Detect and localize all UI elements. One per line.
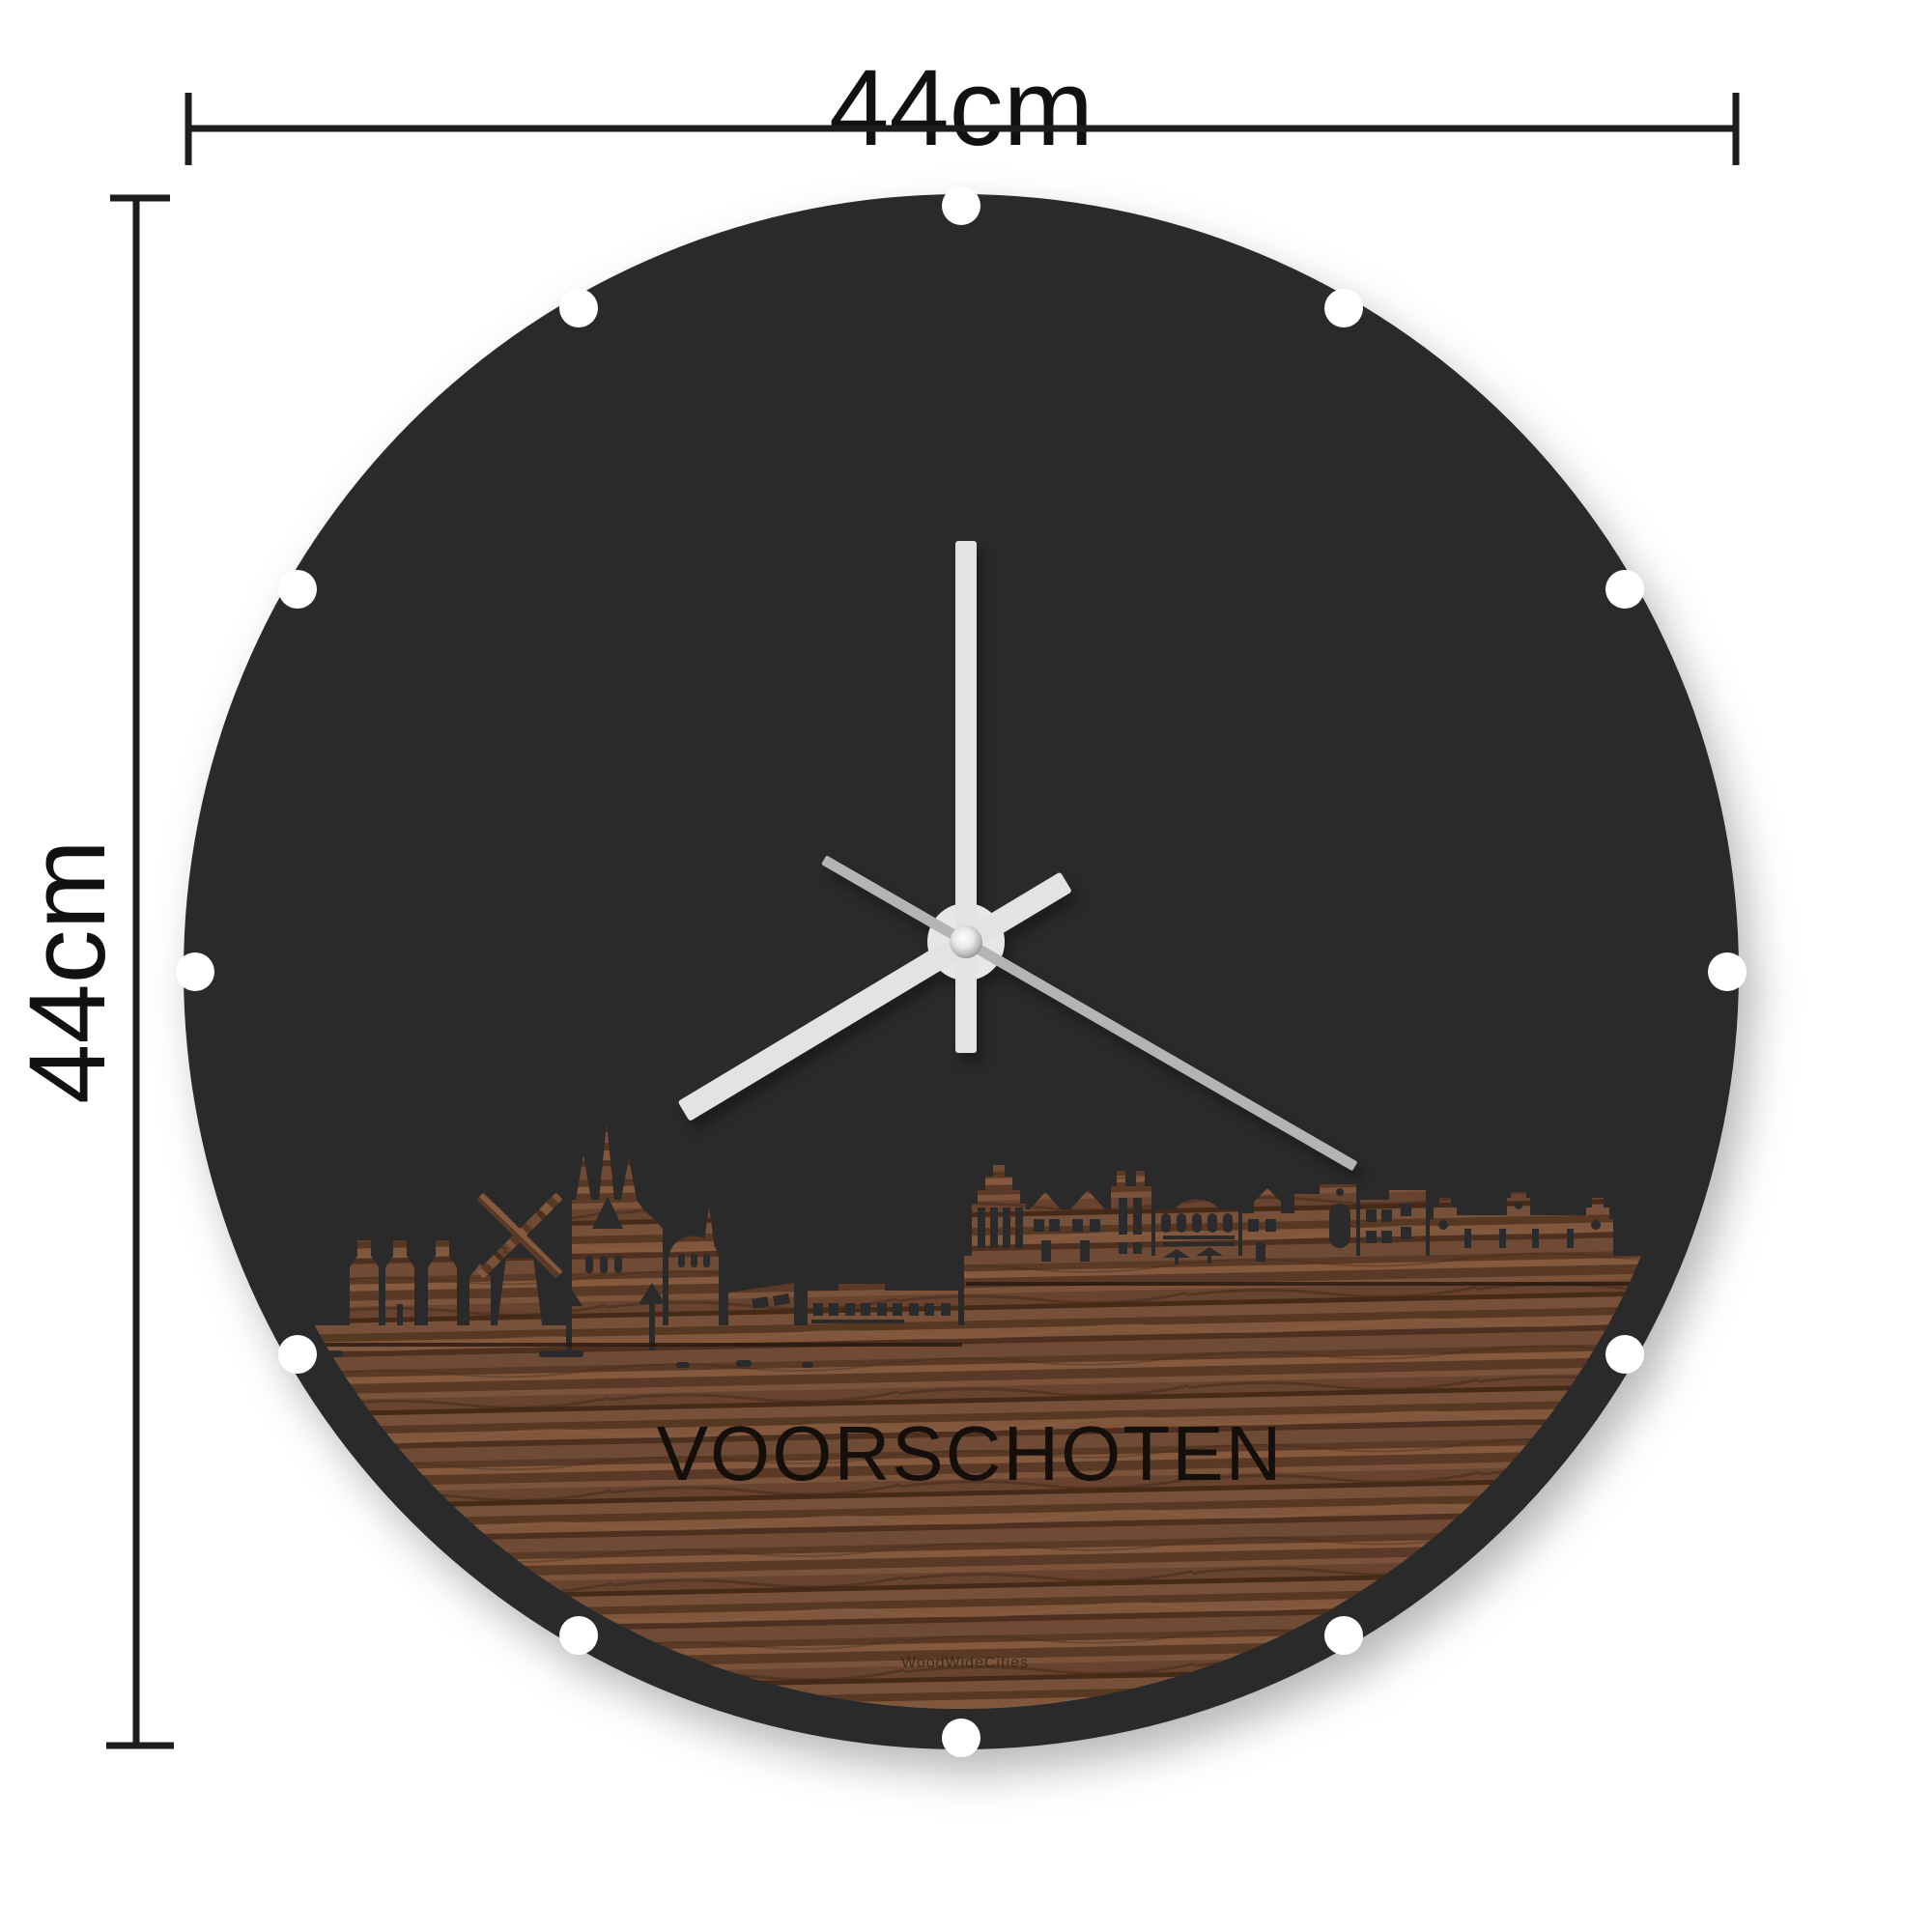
window (1401, 1204, 1411, 1216)
arch-window (1207, 1213, 1217, 1233)
rim-notch-6 (942, 1719, 980, 1757)
castle-slit (1464, 1229, 1471, 1248)
gable-slit (990, 1207, 998, 1248)
gable-slit (978, 1207, 985, 1248)
pavilion-slit (691, 1254, 697, 1267)
rim-notch-8 (278, 1335, 317, 1374)
height-dimension-label: 44cm (7, 839, 128, 1104)
quay-cutout (539, 1350, 583, 1357)
window (1401, 1227, 1411, 1239)
window (1265, 1219, 1276, 1232)
arch-window (1161, 1213, 1171, 1233)
door (1080, 1240, 1090, 1262)
window (893, 1303, 902, 1316)
window (1049, 1219, 1060, 1232)
louver-slit (1163, 1242, 1235, 1246)
window (877, 1303, 887, 1316)
window (1381, 1209, 1392, 1222)
window-strip (811, 1320, 904, 1323)
window-slit (1119, 1198, 1127, 1235)
window-slit (1133, 1198, 1142, 1235)
door (1041, 1240, 1051, 1262)
window-slit (397, 1304, 403, 1325)
rim-notch-11 (559, 289, 598, 327)
round-window (1336, 1188, 1344, 1196)
rim-notch-12 (942, 186, 980, 225)
church-slit (614, 1256, 622, 1273)
arch-window (1223, 1213, 1233, 1233)
arch-niche (1329, 1204, 1350, 1248)
castle-slit (1532, 1229, 1539, 1248)
window (909, 1303, 919, 1316)
pavilion-slit (703, 1254, 710, 1267)
rim-notch-10 (278, 570, 317, 609)
rim-notch-3 (1708, 952, 1747, 991)
hub-ball (950, 925, 982, 958)
window (845, 1303, 855, 1316)
castle-slit (1567, 1229, 1574, 1248)
window (1072, 1219, 1083, 1232)
round-window (1438, 1220, 1448, 1230)
window (861, 1303, 870, 1316)
rim-notch-7 (559, 1616, 598, 1655)
brand-label: WoodWideCities (901, 1655, 1029, 1671)
round-window (1591, 1220, 1601, 1230)
louver-slit (1163, 1236, 1235, 1239)
city-label: VOORSCHOTEN (657, 1410, 1284, 1496)
product-diagram: 44cm 44cm (0, 0, 1932, 1932)
window (1248, 1219, 1259, 1232)
arch-window (1177, 1213, 1186, 1233)
boat-cutout (736, 1360, 752, 1367)
window (813, 1303, 823, 1316)
window (1034, 1219, 1044, 1232)
block-houses (1360, 1190, 1426, 1265)
width-dimension: 44cm (185, 47, 1739, 168)
gable-slit (1015, 1207, 1023, 1248)
rim-notch-1 (1324, 289, 1363, 327)
rim-notch-5 (1324, 1616, 1363, 1655)
arch-window (1192, 1213, 1202, 1233)
window (924, 1303, 934, 1316)
gable-slit (1003, 1207, 1010, 1248)
boat-cutout (676, 1362, 690, 1368)
width-dimension-label: 44cm (829, 47, 1094, 168)
window (1119, 1242, 1127, 1254)
rim-notch-4 (1605, 1335, 1644, 1374)
window (1366, 1231, 1377, 1243)
window (829, 1303, 838, 1316)
rim-notch-2 (1605, 570, 1644, 609)
church-slit (600, 1256, 608, 1273)
rim-notch-9 (176, 952, 214, 991)
church-slit (585, 1256, 593, 1273)
door (1256, 1242, 1265, 1262)
window (941, 1303, 951, 1316)
minute-hand (955, 541, 977, 1053)
window (1381, 1231, 1392, 1243)
window (1366, 1209, 1377, 1222)
height-dimension: 44cm (7, 195, 174, 1748)
castle-slit (1499, 1229, 1506, 1248)
pavilion-slit (678, 1254, 685, 1267)
round-window (1515, 1202, 1522, 1209)
window (1090, 1219, 1100, 1232)
window (1133, 1242, 1142, 1254)
boat-cutout (802, 1362, 813, 1368)
